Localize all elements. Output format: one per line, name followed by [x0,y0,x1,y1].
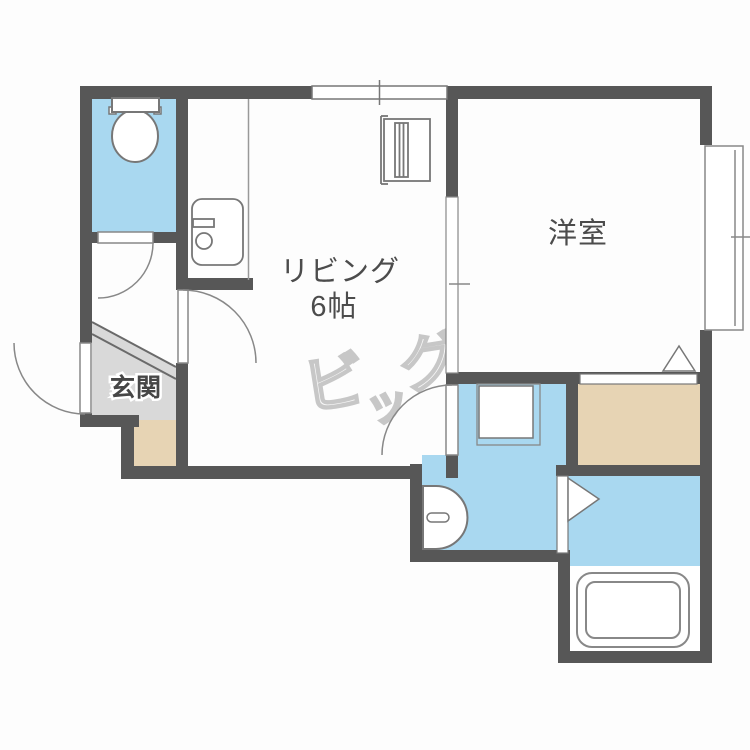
wall-washroom-bottom [410,550,570,562]
watermark-logo: ビ ッ グ [297,324,471,441]
wall-closet-left [566,384,578,476]
wall-living-bottom [121,466,422,479]
window-icon-right [705,146,743,330]
wall-divider-upper [446,86,458,197]
wall-toilet-bottom-left-stub [92,232,98,243]
living-room-label: リビング [280,255,400,288]
toilet-icon [109,98,161,162]
wall-hall-lower [176,363,188,467]
hall-living-door-leaf [178,290,188,363]
refrigerator-icon [381,116,430,184]
closet-door-panel [580,374,697,384]
toilet-door-leaf [98,232,153,243]
door-swing-icon-entrance [14,343,85,414]
door-swing-icon-toilet [98,243,153,298]
western-room-label: 洋室 [548,217,608,250]
watermark-char-1: ビ [298,346,370,424]
wall-washbasin-left [410,464,422,562]
bathroom-door-panel [557,476,568,553]
wall-hall-kitchen [176,99,188,290]
bathroom-floor [568,476,700,568]
entrance-porch-tile [134,417,177,467]
closet-floor [578,384,700,465]
living-western-opening [446,197,458,373]
floorplan-drawing: ビ ッ グ [0,0,750,750]
wall-kitchen-stub [183,278,253,290]
washroom-door-leaf [446,385,458,455]
wall-closet-bottom [556,465,712,476]
living-room-size-label: 6帖 [310,290,357,323]
wall-left-upper [80,86,92,343]
wall-toilet-bottom [153,232,188,243]
kitchen-sink-icon [192,199,243,265]
door-swing-icon-hall-living [183,290,256,363]
wall-divider-lower [446,455,458,478]
floorplan-canvas: ビ ッ グ [0,0,750,750]
folding-door-icon-closet [663,346,695,371]
front-door-leaf [80,343,91,413]
entrance-label: 玄関 [110,373,162,402]
bathtub-icon [577,573,689,647]
wall-bottom-right [558,651,712,663]
entrance-floor [92,322,176,420]
washing-machine-icon [477,384,540,445]
wall-tubroom-left [558,550,570,663]
